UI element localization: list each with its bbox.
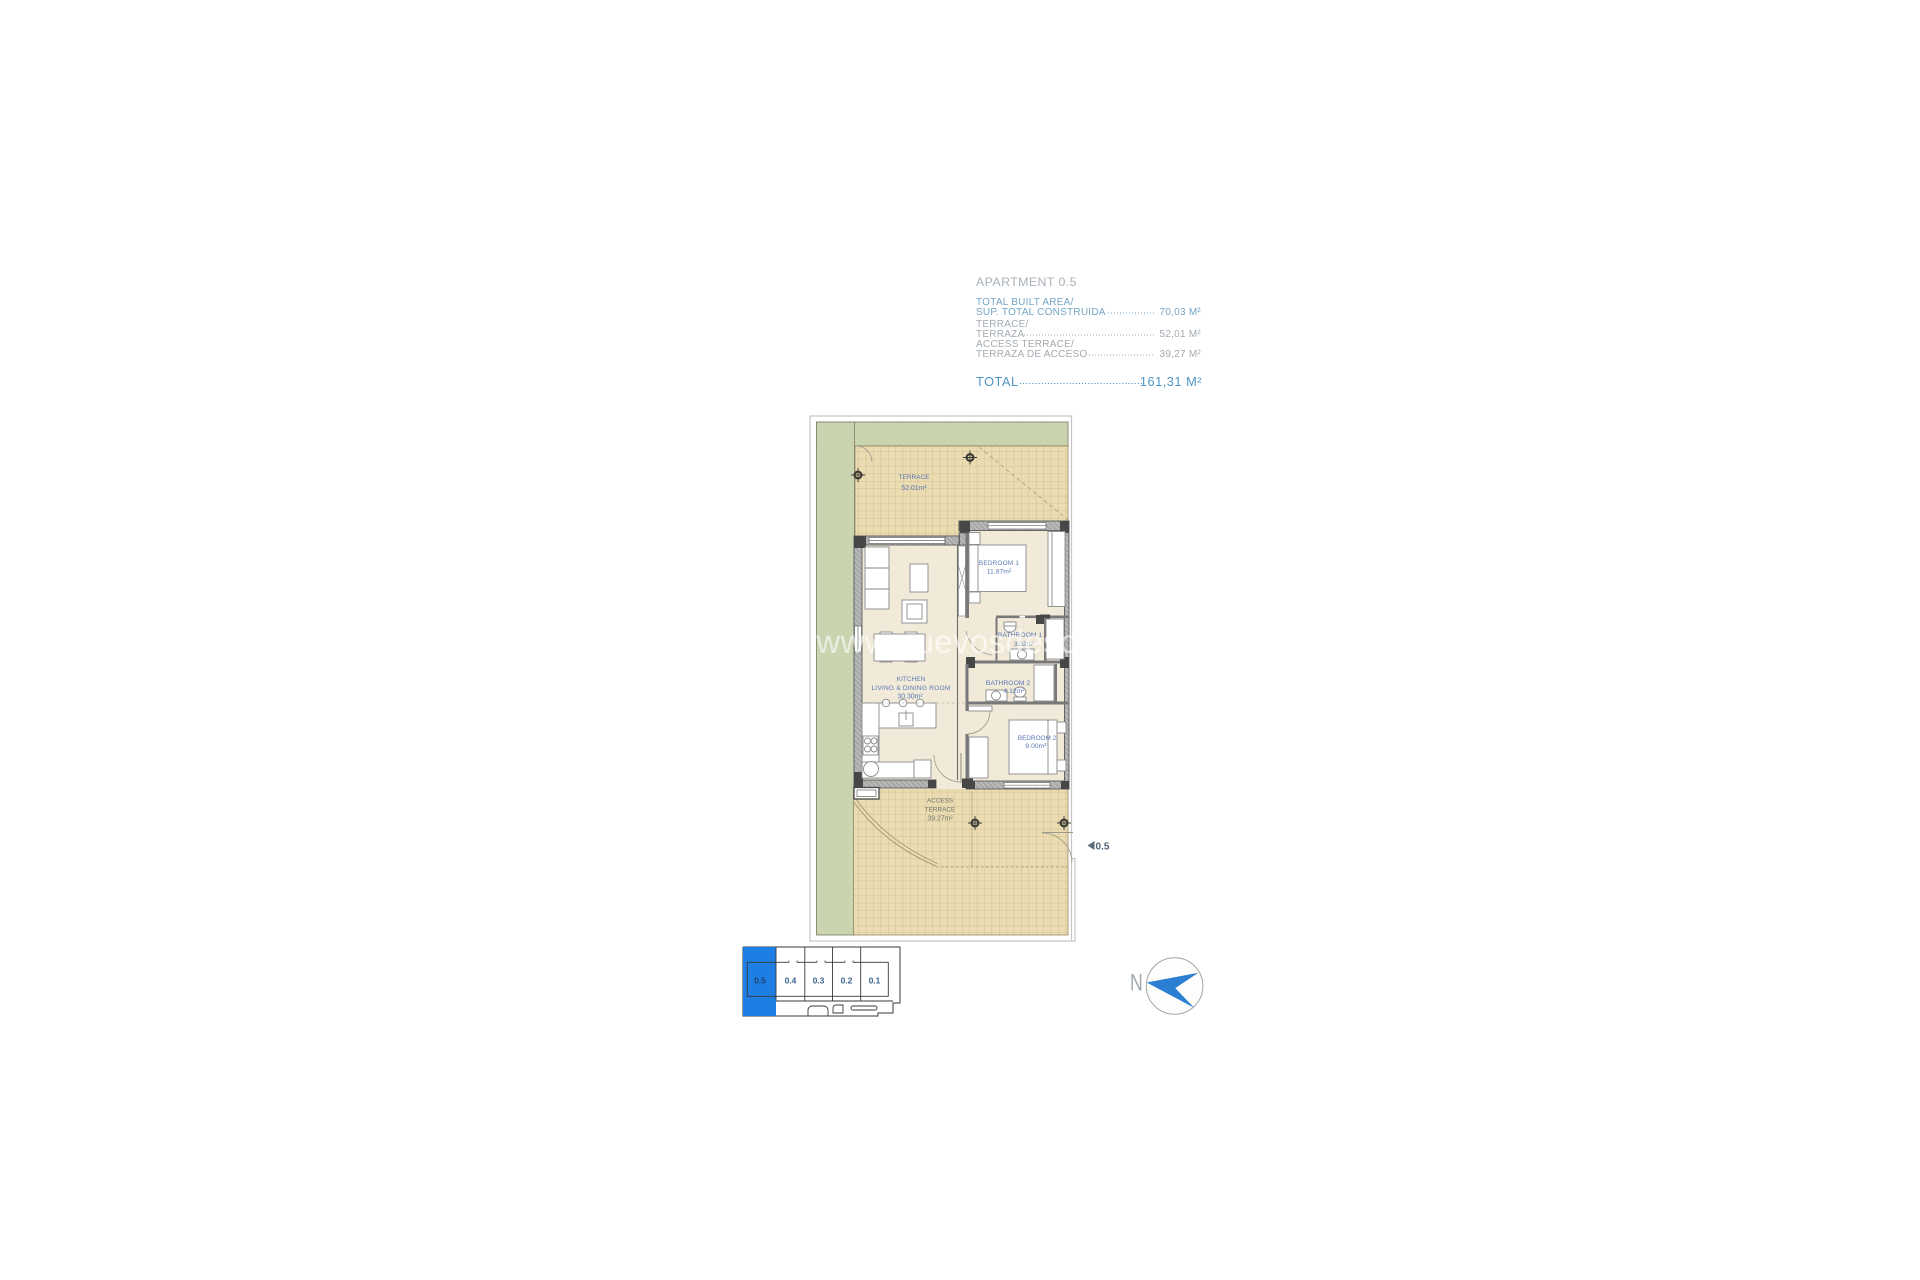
svg-text:BEDROOM 1: BEDROOM 1 <box>979 560 1019 567</box>
svg-text:0.5: 0.5 <box>754 976 766 986</box>
svg-text:0.5: 0.5 <box>1096 842 1110 853</box>
svg-text:SUP. TOTAL CONSTRUIDA: SUP. TOTAL CONSTRUIDA <box>976 307 1106 318</box>
svg-text:APARTMENT 0.5: APARTMENT 0.5 <box>976 275 1077 289</box>
svg-text:70,03 M²: 70,03 M² <box>1160 307 1202 318</box>
svg-text:TERRAZA DE ACCESO: TERRAZA DE ACCESO <box>976 349 1088 360</box>
svg-text:TERRACE: TERRACE <box>925 807 956 814</box>
svg-text:0.2: 0.2 <box>841 976 853 986</box>
svg-text:9.00m²: 9.00m² <box>1025 743 1047 750</box>
svg-text:52,01 M²: 52,01 M² <box>1160 329 1202 340</box>
svg-text:www.nuevosdescu: www.nuevosdescu <box>815 623 1095 660</box>
svg-text:BEDROOM 2: BEDROOM 2 <box>1018 735 1057 742</box>
svg-text:ACCESS: ACCESS <box>927 798 953 805</box>
svg-text:39.27m²: 39.27m² <box>927 816 953 823</box>
svg-text:4.12m²: 4.12m² <box>1003 688 1025 695</box>
svg-text:0.1: 0.1 <box>869 976 881 986</box>
svg-text:BATHROOM 2: BATHROOM 2 <box>986 680 1031 687</box>
svg-text:TERRACE: TERRACE <box>898 474 930 481</box>
svg-text:LIVING & DINING ROOM: LIVING & DINING ROOM <box>871 685 950 692</box>
svg-text:30.30m²: 30.30m² <box>897 694 923 701</box>
svg-text:N: N <box>1130 969 1143 997</box>
svg-text:39,27 M²: 39,27 M² <box>1160 349 1202 360</box>
svg-text:11.87m²: 11.87m² <box>987 569 1012 576</box>
svg-text:52.01m²: 52.01m² <box>901 485 927 492</box>
svg-text:KITCHEN: KITCHEN <box>897 676 926 683</box>
svg-text:161,31 M²: 161,31 M² <box>1140 374 1202 389</box>
svg-text:0.3: 0.3 <box>813 976 825 986</box>
svg-text:TOTAL: TOTAL <box>976 374 1019 389</box>
svg-text:0.4: 0.4 <box>785 976 797 986</box>
